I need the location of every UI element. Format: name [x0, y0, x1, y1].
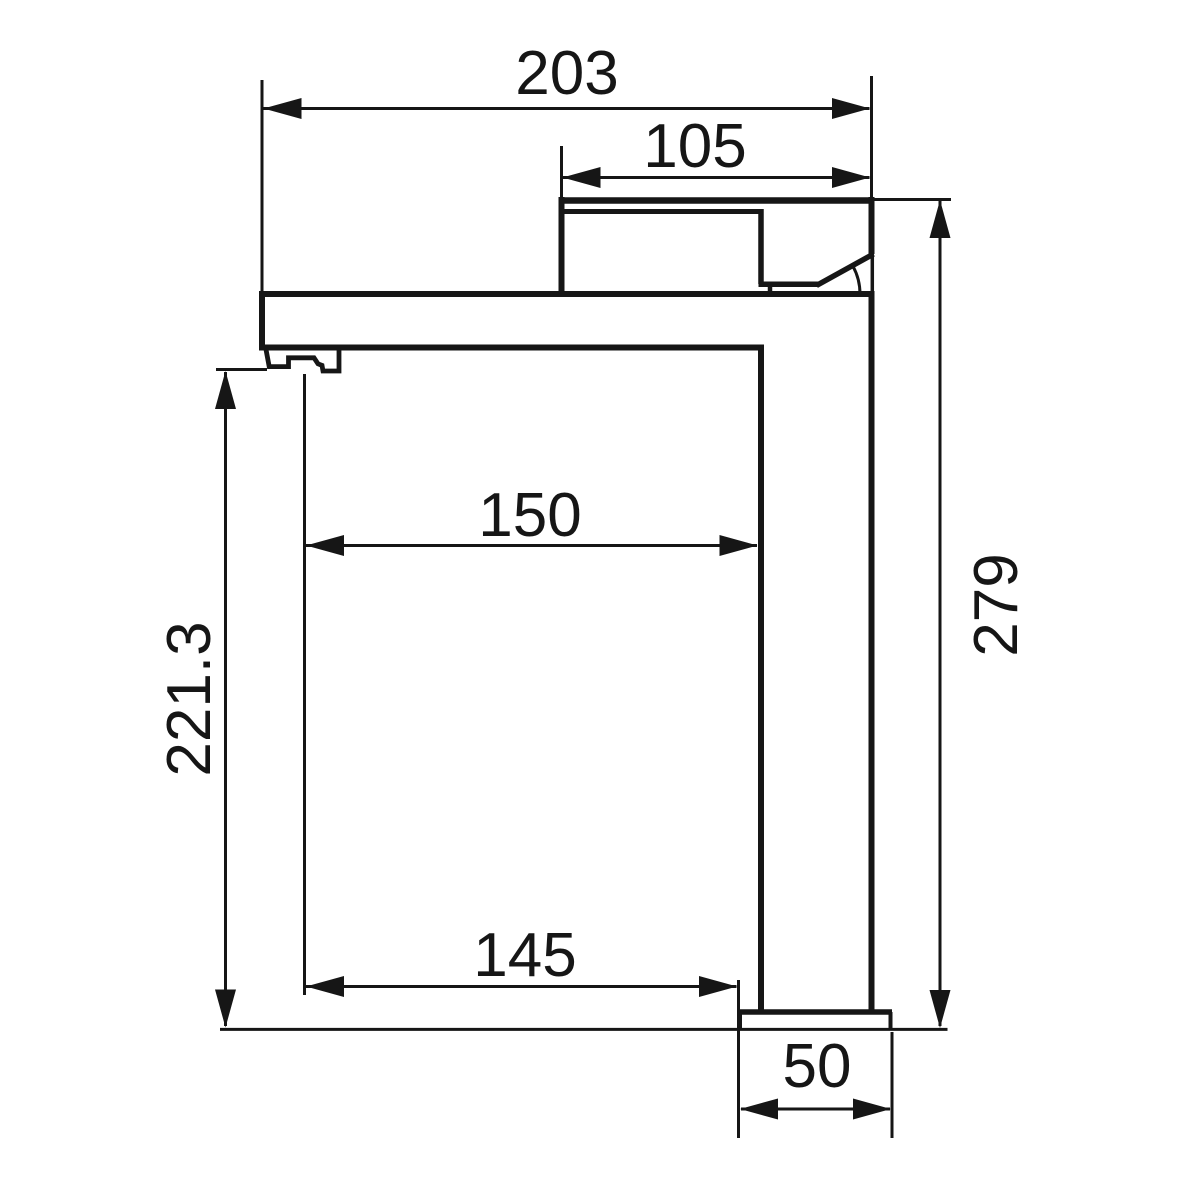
- svg-text:279: 279: [962, 553, 1031, 656]
- svg-text:145: 145: [473, 921, 576, 990]
- svg-text:50: 50: [783, 1032, 852, 1101]
- svg-text:203: 203: [515, 39, 618, 108]
- svg-text:221.3: 221.3: [155, 621, 224, 776]
- svg-text:150: 150: [478, 481, 581, 550]
- svg-text:105: 105: [643, 112, 746, 181]
